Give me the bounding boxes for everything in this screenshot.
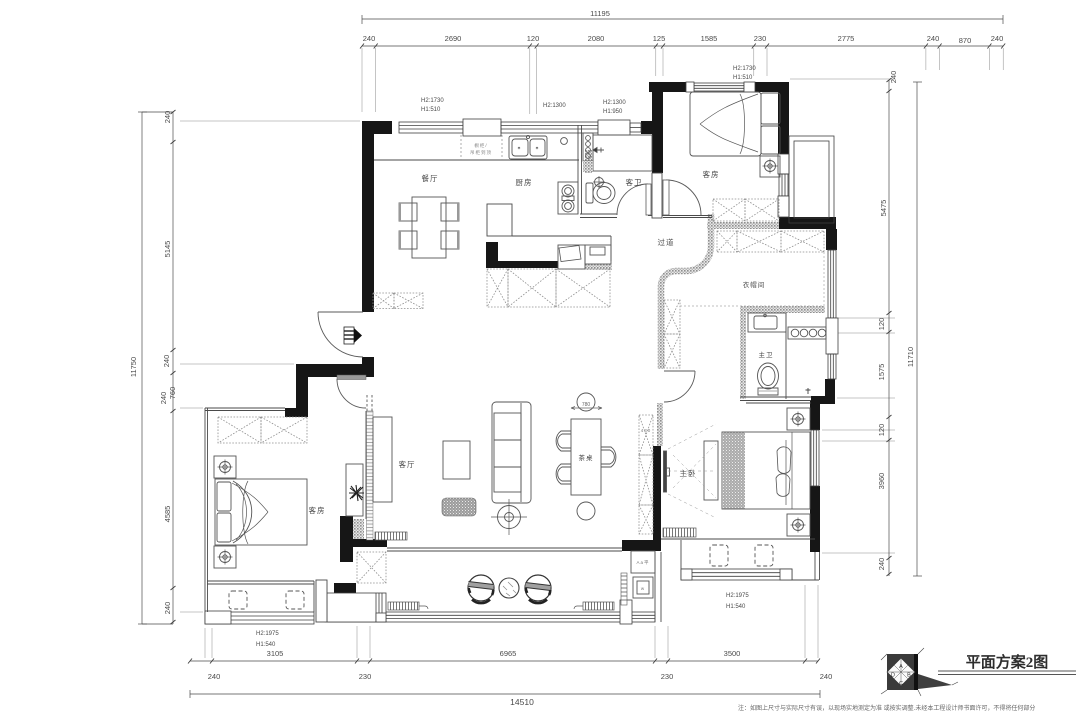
svg-text:橱柜/: 橱柜/	[474, 142, 487, 149]
svg-text:客厅: 客厅	[399, 459, 416, 469]
svg-text:240: 240	[927, 34, 940, 43]
svg-text:1575: 1575	[877, 364, 886, 381]
svg-text:H1:950: H1:950	[603, 109, 623, 115]
svg-text:240: 240	[159, 392, 168, 405]
svg-text:230: 230	[661, 672, 674, 681]
svg-text:4585: 4585	[163, 506, 172, 523]
svg-text:240: 240	[208, 672, 221, 681]
svg-text:2080: 2080	[588, 34, 605, 43]
svg-text:430: 430	[641, 428, 652, 433]
svg-text:H2:1730: H2:1730	[421, 98, 444, 104]
svg-text:平面方案2图: 平面方案2图	[966, 653, 1049, 671]
svg-text:11750: 11750	[129, 357, 138, 377]
svg-text:茶桌: 茶桌	[579, 453, 594, 462]
svg-text:230: 230	[754, 34, 767, 43]
svg-text:衣帽间: 衣帽间	[743, 280, 766, 289]
svg-text:过道: 过道	[658, 237, 675, 247]
svg-text:240: 240	[363, 34, 376, 43]
svg-text:240: 240	[820, 672, 833, 681]
svg-text:w: w	[641, 586, 645, 591]
svg-text:14510: 14510	[510, 697, 534, 707]
svg-text:120: 120	[527, 34, 540, 43]
svg-text:餐厅: 餐厅	[422, 174, 439, 183]
svg-text:11710: 11710	[906, 347, 915, 367]
svg-text:5475: 5475	[879, 200, 888, 217]
svg-text:120: 120	[877, 424, 886, 437]
svg-text:240: 240	[162, 355, 171, 368]
svg-text:B: B	[907, 673, 911, 679]
svg-text:870: 870	[959, 36, 972, 45]
svg-text:230: 230	[359, 672, 372, 681]
svg-text:吊柜到顶: 吊柜到顶	[470, 149, 492, 156]
svg-text:注：如图上尺寸与实际尺寸有误，以现场实地测定为准 或按实调整: 注：如图上尺寸与实际尺寸有误，以现场实地测定为准 或按实调整.未经本工程设计师书…	[738, 704, 1035, 712]
svg-text:客卫: 客卫	[626, 177, 643, 187]
svg-text:主卫: 主卫	[759, 350, 774, 359]
svg-text:H2:1975: H2:1975	[726, 593, 749, 599]
svg-text:H1:510: H1:510	[421, 107, 441, 113]
svg-text:240: 240	[889, 71, 898, 84]
svg-text:客房: 客房	[703, 169, 720, 179]
svg-text:H2:1300: H2:1300	[603, 100, 626, 106]
svg-text:H2:1300: H2:1300	[543, 103, 566, 109]
svg-text:H2:1730: H2:1730	[733, 66, 756, 72]
svg-text:H2:1975: H2:1975	[256, 631, 279, 637]
svg-text:A: A	[899, 664, 903, 670]
svg-text:H1:540: H1:540	[726, 604, 746, 610]
svg-text:H1:510: H1:510	[733, 75, 753, 81]
svg-text:780: 780	[582, 402, 591, 408]
svg-text:客房: 客房	[309, 505, 326, 515]
svg-text:2690: 2690	[445, 34, 462, 43]
svg-text:760: 760	[168, 387, 177, 400]
svg-text:厨房: 厨房	[516, 177, 533, 187]
svg-text:5145: 5145	[163, 241, 172, 258]
svg-text:11195: 11195	[590, 9, 610, 18]
svg-text:125: 125	[653, 34, 666, 43]
svg-text:3105: 3105	[267, 649, 284, 658]
svg-text:1585: 1585	[701, 34, 718, 43]
svg-text:240: 240	[877, 558, 886, 571]
svg-text:240: 240	[163, 111, 172, 124]
svg-text:H1:540: H1:540	[256, 642, 276, 648]
svg-text:3960: 3960	[877, 473, 886, 490]
svg-text:2775: 2775	[838, 34, 855, 43]
svg-text:6965: 6965	[500, 649, 517, 658]
svg-text:C: C	[899, 681, 903, 687]
svg-text:120: 120	[877, 318, 886, 331]
svg-text:240: 240	[163, 602, 172, 615]
svg-text:D: D	[891, 673, 895, 679]
svg-text:主卧: 主卧	[680, 468, 697, 478]
svg-text:3500: 3500	[724, 649, 741, 658]
svg-text:240: 240	[991, 34, 1004, 43]
